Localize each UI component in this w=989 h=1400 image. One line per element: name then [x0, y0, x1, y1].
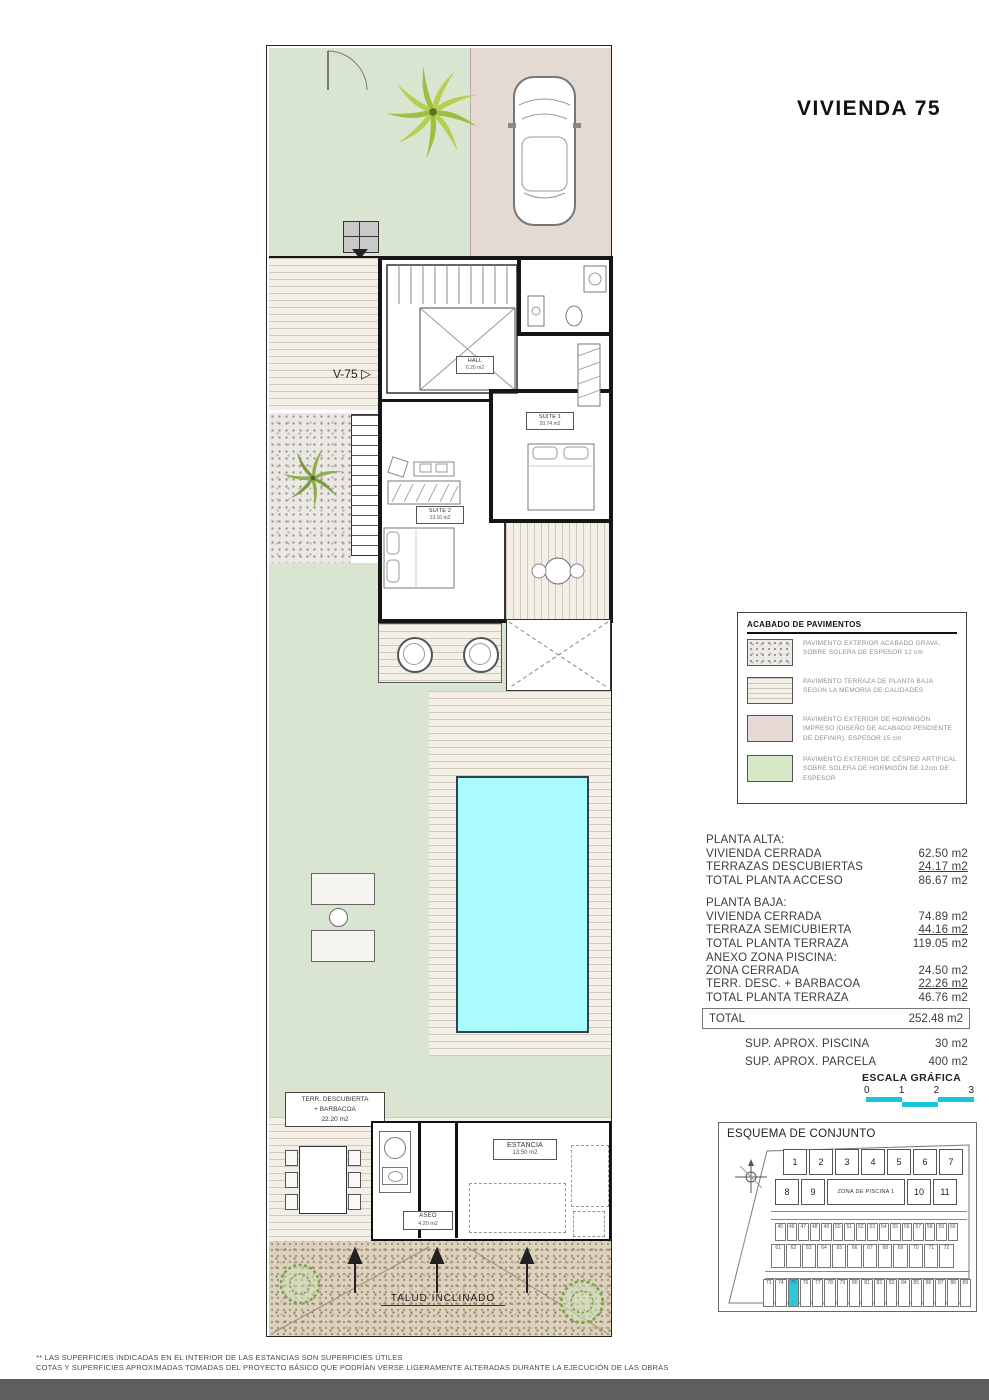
scheme-road	[765, 1271, 969, 1279]
slope-label: TALUD INCLINADO	[381, 1293, 505, 1306]
pergola-skylight	[506, 619, 611, 691]
compass-icon	[733, 1159, 769, 1195]
scheme-unit-small: 63	[802, 1244, 816, 1268]
scheme-unit-small: 77	[812, 1279, 823, 1307]
scheme-unit: 11	[933, 1179, 957, 1205]
scheme-unit: 2	[809, 1149, 833, 1175]
scheme-unit: 10	[907, 1179, 931, 1205]
scheme-unit-small: 76	[800, 1279, 811, 1307]
lower-balcony	[378, 623, 502, 683]
scheme-unit-small: 84	[898, 1279, 909, 1307]
area-label: SUP. APROX. PARCELA	[745, 1056, 876, 1068]
terrace-label-line1: TERR. DESCUBIERTA	[302, 1096, 369, 1103]
round-chair	[397, 637, 433, 673]
scale-tick: 0	[864, 1085, 870, 1096]
legend-item: PAVIMENTO EXTERIOR DE HORMIGÓN IMPRESO (…	[747, 715, 957, 743]
bush-icon	[277, 1261, 323, 1307]
scheme-unit-small: 73	[763, 1279, 774, 1307]
legend-item-text: PAVIMENTO EXTERIOR DE HORMIGÓN IMPRESO (…	[803, 715, 957, 743]
house-walls-svg	[378, 256, 613, 623]
scheme-unit-small: 81	[861, 1279, 872, 1307]
scheme-unit-small: 74	[775, 1279, 786, 1307]
legend-item-text: PAVIMENTO EXTERIOR ACABADO GRAVA, SOBRE …	[803, 639, 957, 666]
area-value: 44.16 m2	[918, 924, 968, 936]
area-row: TERRAZA SEMICUBIERTA44.16 m2	[706, 924, 968, 936]
scheme-unit-small: 56	[902, 1223, 913, 1241]
area-value: 24.17 m2	[918, 861, 968, 873]
scale-tick: 1	[899, 1085, 905, 1096]
total-label: TOTAL	[709, 1013, 745, 1025]
palm-tree-icon	[385, 64, 481, 160]
scheme-row-5: 7374757677787980818283848586878889	[763, 1279, 971, 1307]
terrace-swatch	[747, 677, 793, 704]
area-value: 86.67 m2	[918, 875, 968, 887]
terrace-label-box: TERR. DESCUBIERTA + BARBACOA 22.20 m2	[285, 1092, 385, 1127]
total-value: 252.48 m2	[909, 1013, 963, 1025]
scheme-unit-small: 83	[886, 1279, 897, 1307]
bottom-bar	[0, 1379, 989, 1400]
scheme-unit-small: 79	[837, 1279, 848, 1307]
bush-icon	[557, 1277, 607, 1327]
area-row: TOTAL PLANTA TERRAZA119.05 m2	[706, 938, 968, 950]
exterior-stair	[351, 414, 379, 556]
armchair-dashed	[571, 1145, 609, 1207]
entry-label-text: V-75	[333, 367, 358, 381]
sink-basin	[388, 1171, 403, 1182]
site-scheme: ESQUEMA DE CONJUNTO 1234567 89 ZONA DE P…	[718, 1122, 977, 1312]
area-row: VIVIENDA CERRADA62.50 m2	[706, 848, 968, 860]
entry-deck	[269, 258, 379, 410]
scale-bar	[866, 1097, 974, 1107]
car-icon	[507, 71, 582, 231]
dining-chair	[348, 1150, 361, 1166]
scheme-unit-small: 62	[786, 1244, 800, 1268]
room-label-aseo: ASEO 4.20 m2	[403, 1211, 453, 1230]
annex-building: ASEO 4.20 m2 ESTANCIA 13.50 m2	[371, 1121, 611, 1241]
area-row: TERRAZAS DESCUBIERTAS24.17 m2	[706, 861, 968, 873]
scheme-row-1: 1234567	[783, 1149, 963, 1175]
table-dashed	[573, 1211, 605, 1237]
scheme-unit-small: 57	[913, 1223, 924, 1241]
scheme-unit-small: 68	[878, 1244, 892, 1268]
area-row: VIVIENDA CERRADA74.89 m2	[706, 911, 968, 923]
scheme-unit-small: 53	[867, 1223, 878, 1241]
gate-door-arc-icon	[325, 49, 369, 93]
scheme-unit-small: 54	[879, 1223, 890, 1241]
scheme-unit-small: 47	[798, 1223, 809, 1241]
scheme-unit-small: 82	[874, 1279, 885, 1307]
sheet-title: VIVIENDA 75	[797, 97, 941, 121]
scheme-unit-small: 52	[856, 1223, 867, 1241]
footnote-2: COTAS Y SUPERFICIES APROXIMADAS TOMADAS …	[36, 1363, 669, 1372]
room-label-estancia: ESTANCIA 13.50 m2	[493, 1139, 557, 1160]
scale-tick: 3	[968, 1085, 974, 1096]
round-chair-inner	[469, 643, 491, 665]
area-value: 22.26 m2	[918, 978, 968, 990]
area-label: ZONA CERRADA	[706, 965, 799, 977]
area-label: VIVIENDA CERRADA	[706, 848, 822, 860]
scheme-unit-small: 46	[787, 1223, 798, 1241]
scheme-unit: 6	[913, 1149, 937, 1175]
scheme-unit-small: 50	[833, 1223, 844, 1241]
area-label: TOTAL PLANTA TERRAZA	[706, 992, 849, 1004]
scale-ticks: 0123	[864, 1085, 974, 1096]
scheme-unit-small: 87	[935, 1279, 946, 1307]
area-label: TOTAL PLANTA TERRAZA	[706, 938, 849, 950]
scheme-unit-small: 78	[824, 1279, 835, 1307]
scheme-unit-small: 65	[832, 1244, 846, 1268]
scheme-row-2: 89 ZONA DE PISCINA 1 1011	[775, 1179, 957, 1205]
area-value: 30 m2	[935, 1038, 968, 1050]
scheme-row-4: 616263646566676869707172	[771, 1244, 954, 1268]
scheme-row-3: 45464748495051525354555657585960	[775, 1223, 958, 1241]
scheme-unit: 1	[783, 1149, 807, 1175]
entry-label: V-75 ▷	[275, 366, 371, 382]
legend-title: ACABADO DE PAVIMENTOS	[747, 620, 957, 634]
scheme-unit: 3	[835, 1149, 859, 1175]
scheme-row-2-left: 89	[775, 1179, 825, 1205]
scale-title: ESCALA GRÁFICA	[862, 1072, 976, 1084]
scheme-unit-small: 71	[924, 1244, 938, 1268]
legend-item-text: PAVIMENTO TERRAZA DE PLANTA BAJA SEGÚN L…	[803, 677, 957, 704]
sofa-dashed	[469, 1183, 566, 1233]
scheme-unit: 9	[801, 1179, 825, 1205]
scheme-unit-small: 69	[893, 1244, 907, 1268]
pool-zone-box: ZONA DE PISCINA 1	[827, 1179, 905, 1205]
terrace-label-line3: 22.20 m2	[321, 1116, 348, 1123]
scale-tick: 2	[934, 1085, 940, 1096]
scheme-unit-small: 89	[960, 1279, 971, 1307]
dining-chair	[348, 1194, 361, 1210]
scheme-unit: 5	[887, 1149, 911, 1175]
area-value: 24.50 m2	[918, 965, 968, 977]
legend-item: PAVIMENTO TERRAZA DE PLANTA BAJA SEGÚN L…	[747, 677, 957, 704]
section-title: PLANTA BAJA:	[706, 897, 787, 909]
area-label: TERRAZA SEMICUBIERTA	[706, 924, 851, 936]
round-chair-inner	[403, 643, 425, 665]
terrace-label-line2: + BARBACOA	[314, 1106, 356, 1113]
scheme-unit-small: 75	[788, 1279, 799, 1307]
area-row: SUP. APROX. PISCINA30 m2	[745, 1038, 968, 1050]
washer-icon	[384, 1137, 406, 1159]
legend-item: PAVIMENTO EXTERIOR DE CÉSPED ARTIFICAL S…	[747, 755, 957, 783]
scheme-unit-small: 66	[847, 1244, 861, 1268]
scheme-unit-small: 85	[911, 1279, 922, 1307]
area-label: VIVIENDA CERRADA	[706, 911, 822, 923]
scheme-unit: 8	[775, 1179, 799, 1205]
scheme-unit-small: 70	[909, 1244, 923, 1268]
scheme-unit-small: 48	[810, 1223, 821, 1241]
scheme-unit-small: 72	[939, 1244, 953, 1268]
scheme-unit-small: 59	[936, 1223, 947, 1241]
area-label: SUP. APROX. PISCINA	[745, 1038, 869, 1050]
gravel-swatch	[747, 639, 793, 666]
scheme-unit-small: 45	[775, 1223, 786, 1241]
section-title: ANEXO ZONA PISCINA:	[706, 952, 837, 964]
shrub-plant-icon	[281, 446, 345, 510]
legend-item-text: PAVIMENTO EXTERIOR DE CÉSPED ARTIFICAL S…	[803, 755, 957, 783]
scheme-unit-small: 67	[863, 1244, 877, 1268]
scheme-unit-small: 55	[890, 1223, 901, 1241]
area-label: TERRAZAS DESCUBIERTAS	[706, 861, 863, 873]
area-label: TERR. DESC. + BARBACOA	[706, 978, 860, 990]
scheme-unit-small: 64	[817, 1244, 831, 1268]
scheme-unit: 4	[861, 1149, 885, 1175]
scheme-unit-small: 51	[844, 1223, 855, 1241]
dining-chair	[285, 1172, 298, 1188]
scheme-unit-small: 80	[849, 1279, 860, 1307]
entry-direction-icon: ▷	[361, 366, 371, 381]
scheme-unit-small: 88	[947, 1279, 958, 1307]
grass-swatch	[747, 755, 793, 782]
area-row: TERR. DESC. + BARBACOA22.26 m2	[706, 978, 968, 990]
side-table	[329, 908, 348, 927]
area-row: TOTAL PLANTA ACCESO86.67 m2	[706, 875, 968, 887]
legend-item: PAVIMENTO EXTERIOR ACABADO GRAVA, SOBRE …	[747, 639, 957, 666]
area-value: 74.89 m2	[918, 911, 968, 923]
scheme-unit-small: 60	[948, 1223, 959, 1241]
dining-chair	[348, 1172, 361, 1188]
dining-table	[299, 1146, 347, 1214]
parcel-plan: V-75 ▷	[266, 45, 612, 1337]
concrete-swatch	[747, 715, 793, 742]
footnote-1: ** LAS SUPERFICIES INDICADAS EN EL INTER…	[36, 1353, 403, 1362]
house-floorplan: HALL 6.20 m2 SUITE 1 20.74 m2 SUITE 2 13…	[378, 256, 613, 623]
pavement-legend: ACABADO DE PAVIMENTOS PAVIMENTO EXTERIOR…	[737, 612, 967, 804]
scheme-road	[771, 1211, 967, 1220]
area-value: 46.76 m2	[918, 992, 968, 1004]
scheme-row-2-right: 1011	[907, 1179, 957, 1205]
scheme-unit: 7	[939, 1149, 963, 1175]
room-label-suite1: SUITE 1 20.74 m2	[526, 412, 574, 430]
plan-sheet: V-75 ▷	[0, 0, 989, 1400]
section-title: PLANTA ALTA:	[706, 834, 784, 846]
sun-lounger	[311, 873, 375, 905]
scheme-unit-small: 49	[821, 1223, 832, 1241]
sink-icon	[382, 1167, 408, 1185]
total-row: TOTAL 252.48 m2	[702, 1008, 970, 1029]
dining-chair	[285, 1150, 298, 1166]
scheme-unit-small: 58	[925, 1223, 936, 1241]
slope-area: TALUD INCLINADO	[269, 1241, 611, 1336]
sun-lounger	[311, 930, 375, 962]
dining-chair	[285, 1194, 298, 1210]
round-chair	[463, 637, 499, 673]
area-row: TOTAL PLANTA TERRAZA46.76 m2	[706, 992, 968, 1004]
area-label: TOTAL PLANTA ACCESO	[706, 875, 843, 887]
area-value: 119.05 m2	[913, 938, 968, 950]
room-label-hall: HALL 6.20 m2	[456, 356, 494, 374]
area-value: 62.50 m2	[918, 848, 968, 860]
room-label-suite2: SUITE 2 13.10 m2	[416, 506, 464, 524]
scheme-unit-small: 86	[923, 1279, 934, 1307]
area-row: SUP. APROX. PARCELA400 m2	[745, 1056, 968, 1068]
area-row: ZONA CERRADA24.50 m2	[706, 965, 968, 977]
scheme-unit-small: 61	[771, 1244, 785, 1268]
area-value: 400 m2	[928, 1056, 968, 1068]
annex-wall	[455, 1123, 458, 1238]
swimming-pool	[456, 776, 589, 1033]
